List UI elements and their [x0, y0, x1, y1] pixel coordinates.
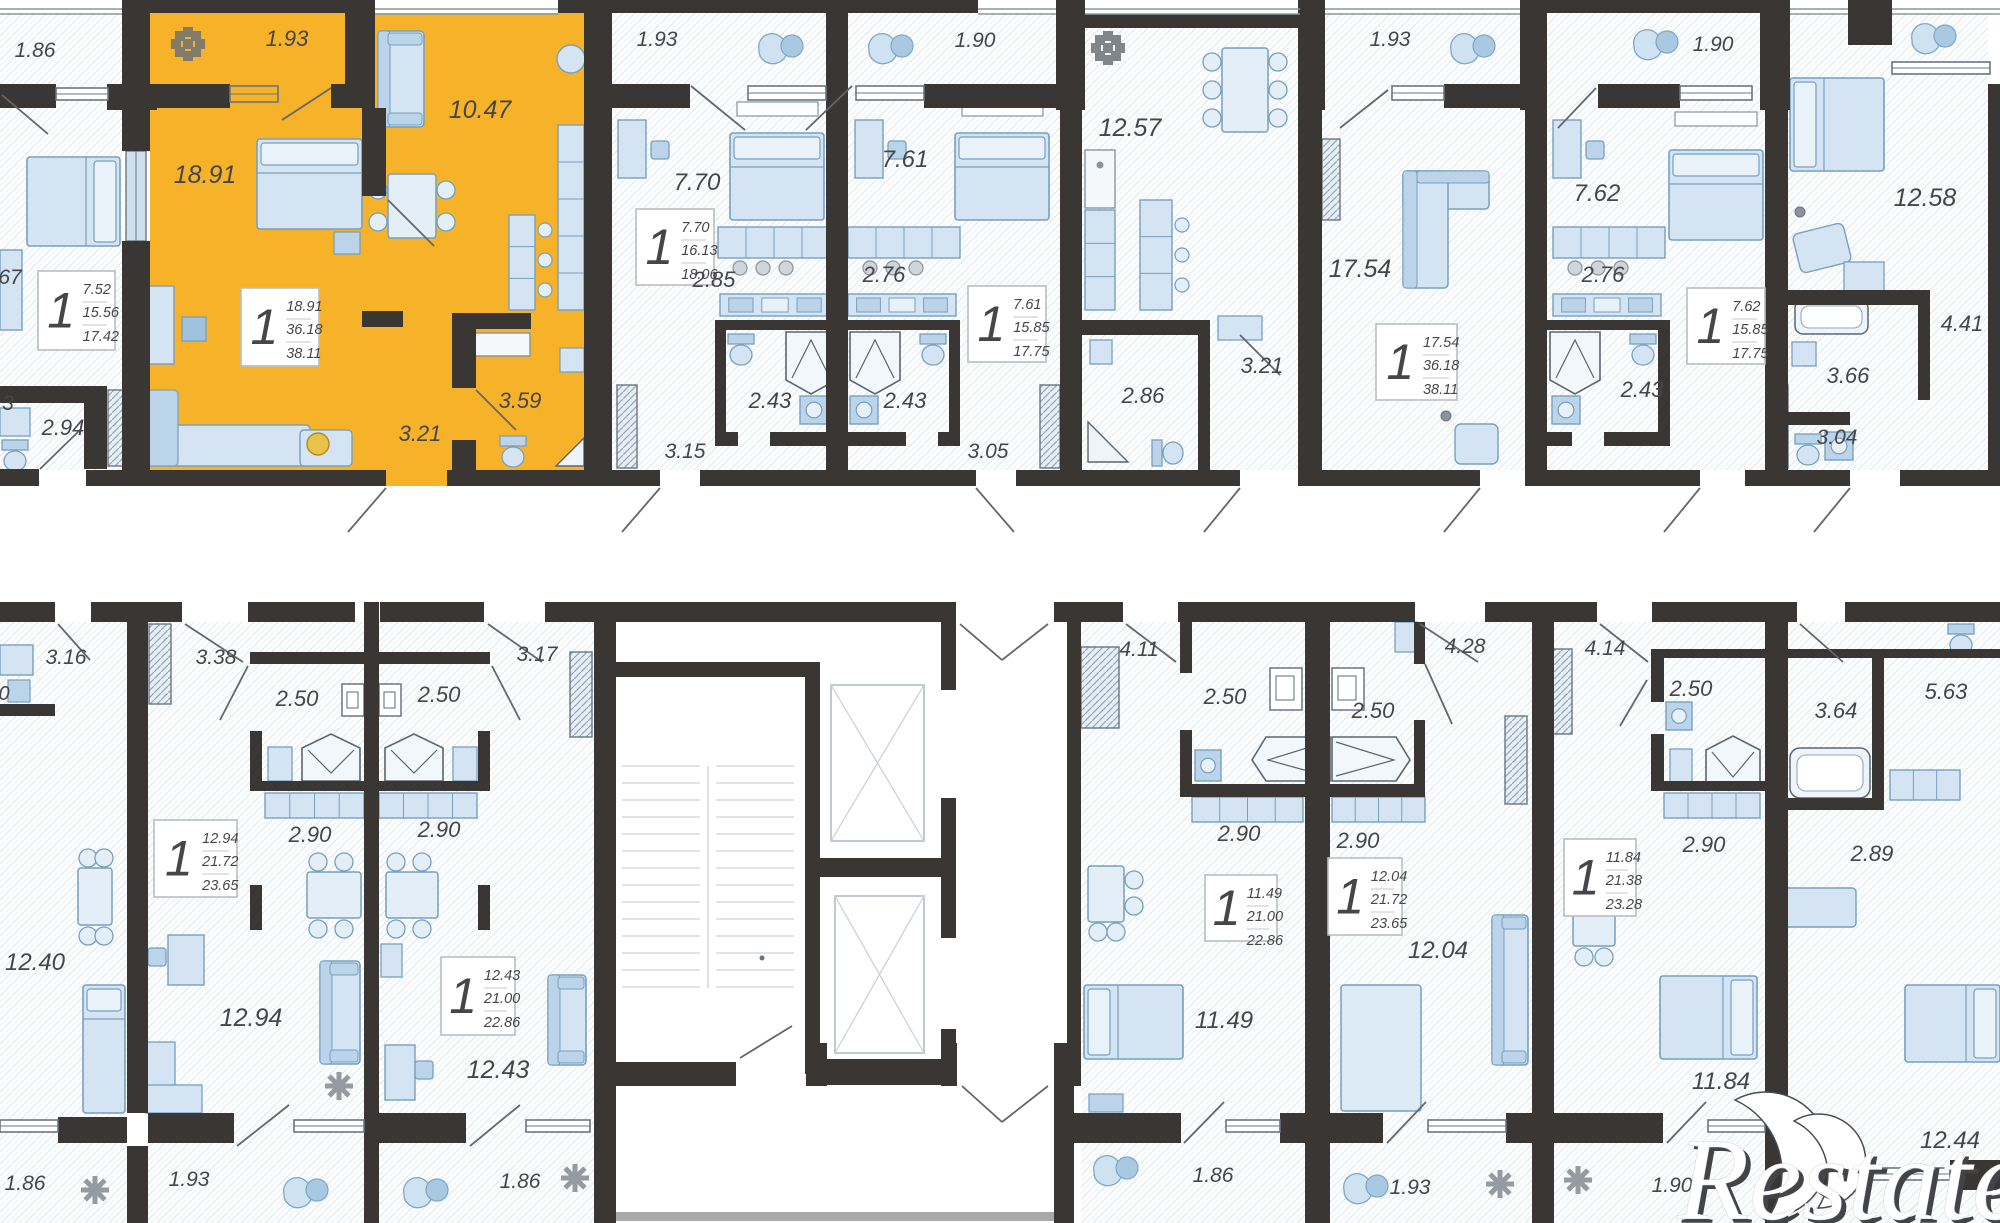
- svg-text:1.90: 1.90: [955, 29, 996, 52]
- svg-text:1.86: 1.86: [500, 1170, 541, 1193]
- svg-text:7.70: 7.70: [681, 220, 709, 236]
- svg-text:4.11: 4.11: [1119, 638, 1158, 661]
- svg-text:15.85: 15.85: [1732, 322, 1769, 338]
- svg-text:21.00: 21.00: [483, 991, 520, 1007]
- svg-text:12.40: 12.40: [5, 949, 66, 976]
- svg-text:1.93: 1.93: [266, 26, 310, 51]
- svg-text:67: 67: [0, 266, 23, 289]
- svg-text:2.86: 2.86: [1121, 383, 1166, 408]
- svg-text:3.38: 3.38: [196, 646, 237, 669]
- svg-text:36.18: 36.18: [286, 322, 322, 338]
- svg-text:1: 1: [1386, 334, 1414, 390]
- svg-text:17.75: 17.75: [1732, 346, 1769, 362]
- svg-text:1.86: 1.86: [5, 1172, 46, 1195]
- svg-text:12.94: 12.94: [220, 1004, 283, 1032]
- svg-text:1: 1: [1336, 869, 1364, 925]
- svg-text:2.90: 2.90: [288, 822, 333, 847]
- svg-text:15.56: 15.56: [83, 305, 120, 321]
- svg-text:2.50: 2.50: [417, 682, 462, 707]
- svg-text:38.11: 38.11: [1423, 382, 1458, 398]
- svg-text:18.91: 18.91: [174, 161, 237, 189]
- svg-text:1.90: 1.90: [1693, 33, 1734, 56]
- svg-text:3.16: 3.16: [46, 646, 87, 669]
- svg-text:22.86: 22.86: [1246, 933, 1284, 949]
- svg-text:7.61: 7.61: [882, 146, 929, 173]
- svg-text:3.59: 3.59: [499, 388, 542, 413]
- svg-text:7.62: 7.62: [1732, 299, 1760, 315]
- svg-text:38.11: 38.11: [286, 346, 321, 362]
- svg-text:3.64: 3.64: [1815, 698, 1858, 723]
- svg-text:Restate: Restate: [1676, 1114, 2000, 1223]
- svg-text:23.28: 23.28: [1605, 897, 1642, 913]
- svg-text:2.89: 2.89: [1850, 841, 1894, 866]
- svg-text:4.41: 4.41: [1941, 311, 1984, 336]
- svg-text:12.94: 12.94: [202, 831, 238, 847]
- svg-text:2.43: 2.43: [1620, 377, 1665, 402]
- svg-text:7.70: 7.70: [674, 169, 721, 196]
- svg-text:21.72: 21.72: [201, 854, 238, 870]
- svg-text:1.93: 1.93: [1390, 1176, 1431, 1199]
- svg-text:2.90: 2.90: [1682, 832, 1727, 857]
- svg-text:22.86: 22.86: [483, 1015, 521, 1031]
- svg-text:4.14: 4.14: [1585, 637, 1626, 660]
- svg-text:2.43: 2.43: [883, 388, 928, 413]
- svg-text:3: 3: [2, 392, 14, 415]
- svg-text:15.85: 15.85: [1013, 320, 1050, 336]
- svg-text:3.21: 3.21: [1241, 353, 1284, 378]
- svg-text:18.91: 18.91: [286, 299, 322, 315]
- svg-text:12.04: 12.04: [1408, 937, 1468, 964]
- svg-text:1: 1: [47, 283, 75, 339]
- svg-text:17.75: 17.75: [1013, 344, 1050, 360]
- svg-text:12.04: 12.04: [1371, 869, 1407, 885]
- svg-text:1.93: 1.93: [169, 1168, 210, 1191]
- svg-text:1: 1: [1213, 880, 1241, 936]
- svg-text:0: 0: [0, 683, 10, 705]
- svg-text:1: 1: [645, 219, 673, 275]
- svg-text:2.50: 2.50: [1351, 698, 1396, 723]
- svg-text:2.90: 2.90: [1217, 821, 1262, 846]
- svg-text:11.49: 11.49: [1247, 886, 1282, 902]
- svg-text:2.50: 2.50: [275, 686, 320, 711]
- svg-text:5.63: 5.63: [1925, 679, 1969, 704]
- svg-text:2.76: 2.76: [1581, 262, 1626, 287]
- svg-text:21.38: 21.38: [1605, 873, 1642, 889]
- svg-text:1: 1: [1696, 298, 1724, 354]
- svg-text:3.15: 3.15: [665, 440, 706, 463]
- svg-text:12.43: 12.43: [484, 968, 520, 984]
- svg-text:2.85: 2.85: [692, 267, 737, 292]
- svg-text:23.65: 23.65: [201, 878, 239, 894]
- svg-text:3.05: 3.05: [968, 440, 1009, 463]
- svg-text:12.57: 12.57: [1099, 114, 1163, 142]
- svg-text:1.86: 1.86: [15, 39, 56, 62]
- svg-text:1.86: 1.86: [1193, 1164, 1234, 1187]
- svg-text:3.21: 3.21: [399, 421, 442, 446]
- svg-text:10.47: 10.47: [449, 96, 513, 124]
- svg-text:2.50: 2.50: [1669, 676, 1714, 701]
- svg-text:36.18: 36.18: [1423, 358, 1459, 374]
- svg-text:17.54: 17.54: [1423, 335, 1459, 351]
- svg-text:17.54: 17.54: [1329, 255, 1392, 283]
- svg-text:21.72: 21.72: [1370, 892, 1407, 908]
- svg-text:2.76: 2.76: [862, 262, 907, 287]
- svg-text:21.00: 21.00: [1246, 909, 1283, 925]
- svg-text:12.43: 12.43: [467, 1056, 530, 1084]
- svg-text:3.17: 3.17: [517, 643, 559, 666]
- svg-text:11.49: 11.49: [1195, 1007, 1253, 1034]
- svg-text:7.61: 7.61: [1013, 297, 1041, 313]
- svg-text:2.50: 2.50: [1203, 684, 1248, 709]
- svg-text:1.93: 1.93: [637, 28, 678, 51]
- svg-text:4.28: 4.28: [1445, 635, 1486, 658]
- svg-text:2.90: 2.90: [417, 817, 462, 842]
- svg-text:11.84: 11.84: [1606, 850, 1641, 866]
- svg-text:3.04: 3.04: [1817, 426, 1858, 449]
- svg-text:1.93: 1.93: [1370, 28, 1411, 51]
- svg-text:3.66: 3.66: [1827, 363, 1871, 388]
- svg-text:17.42: 17.42: [83, 329, 119, 345]
- svg-text:7.62: 7.62: [1574, 180, 1621, 207]
- svg-text:2.43: 2.43: [748, 388, 793, 413]
- svg-text:7.52: 7.52: [83, 282, 111, 298]
- svg-text:11.84: 11.84: [1692, 1068, 1750, 1095]
- svg-text:1: 1: [1572, 850, 1600, 906]
- svg-text:1: 1: [449, 968, 477, 1024]
- svg-text:1: 1: [977, 296, 1005, 352]
- svg-text:1: 1: [250, 299, 278, 355]
- svg-text:16.13: 16.13: [681, 243, 717, 259]
- svg-text:2.90: 2.90: [1336, 828, 1381, 853]
- svg-text:2.94: 2.94: [41, 415, 85, 440]
- svg-text:1: 1: [165, 831, 193, 887]
- svg-text:12.58: 12.58: [1894, 184, 1957, 212]
- svg-text:23.65: 23.65: [1370, 916, 1408, 932]
